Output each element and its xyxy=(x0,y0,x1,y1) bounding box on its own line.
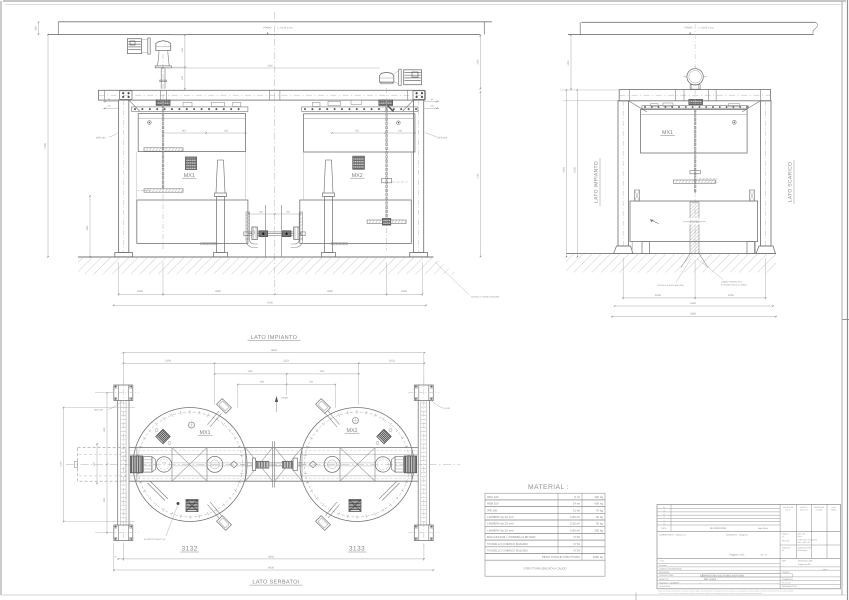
svg-text:1345: 1345 xyxy=(401,290,407,293)
svg-text:+4.100: +4.100 xyxy=(443,407,451,410)
svg-text:DOCUMENTO N°: DOCUMENTO N° xyxy=(782,585,797,588)
svg-text:0,20 m²: 0,20 m² xyxy=(570,522,580,526)
svg-text:TASSELLI N.8 M12 BULLONI: TASSELLI N.8 M12 BULLONI xyxy=(657,284,684,287)
svg-text:LAMIERA Sp.20 mm: LAMIERA Sp.20 mm xyxy=(487,528,514,532)
svg-text:HEB 160: HEB 160 xyxy=(438,137,448,140)
svg-text:2120: 2120 xyxy=(690,302,696,305)
svg-text:MX2: MX2 xyxy=(352,173,363,179)
svg-text:Fornitore: Fornitore xyxy=(659,564,667,567)
svg-text:3133: 3133 xyxy=(349,546,365,553)
svg-text:HEA 120: HEA 120 xyxy=(487,495,499,499)
svg-text:1080 kg: 1080 kg xyxy=(593,555,604,559)
svg-text:1050: 1050 xyxy=(567,60,570,66)
svg-text:LAMIERA Sp.15 mm: LAMIERA Sp.15 mm xyxy=(487,522,514,526)
svg-text:data firma: data firma xyxy=(758,527,769,530)
svg-text:1358: 1358 xyxy=(165,359,171,362)
svg-text:N° A.C.12: N° A.C.12 xyxy=(782,581,790,584)
svg-text:4432: 4432 xyxy=(268,555,274,558)
svg-text:70 kg: 70 kg xyxy=(596,508,603,512)
svg-text:0,80 m²: 0,80 m² xyxy=(570,528,580,532)
svg-text:30 kg: 30 kg xyxy=(596,522,603,526)
svg-text:ATTACCO TRASC. N.2: ATTACCO TRASC. N.2 xyxy=(144,538,166,541)
svg-text:2120: 2120 xyxy=(60,461,63,467)
svg-text:N°: N° xyxy=(782,535,784,538)
svg-text:600 kg: 600 kg xyxy=(594,502,603,506)
svg-text:AGENZIA N. - Disegn.M.: AGENZIA N. - Disegn.M. xyxy=(726,534,748,537)
svg-text:1520: 1520 xyxy=(103,497,106,503)
svg-text:N°18: N°18 xyxy=(574,535,581,539)
svg-text:0,80 m²: 0,80 m² xyxy=(570,515,580,519)
svg-text:MX1 - MX2 - PB: MX1 - MX2 - PB xyxy=(798,541,811,544)
svg-text:1050: 1050 xyxy=(477,59,480,65)
svg-text:DATA EMISS.: DATA EMISS. xyxy=(659,585,671,588)
svg-text:N°16: N°16 xyxy=(574,542,581,546)
svg-text:REV.: REV. xyxy=(662,527,667,530)
svg-text:-: - xyxy=(602,535,603,539)
svg-text:TAVOLA N. - NUMERO: TAVOLA N. - NUMERO xyxy=(659,581,679,584)
svg-text:2400: 2400 xyxy=(690,313,696,316)
svg-text:AL PONTE DILLO A CURCO: AL PONTE DILLO A CURCO xyxy=(721,283,747,286)
svg-text:LUOGO CANTIERE/SEDE: LUOGO CANTIERE/SEDE xyxy=(659,568,682,571)
svg-text:OGGETTO: OGGETTO xyxy=(659,578,669,581)
svg-text:7150: 7150 xyxy=(44,143,47,149)
svg-text:4760: 4760 xyxy=(267,301,273,304)
svg-text:4630: 4630 xyxy=(268,567,274,570)
svg-text:L.+3,50 s.l.m.: L.+3,50 s.l.m. xyxy=(699,26,715,29)
svg-text:PIANO: PIANO xyxy=(684,26,692,29)
svg-text:TRAMP: TRAMP xyxy=(281,397,289,400)
svg-text:2435: 2435 xyxy=(327,290,333,293)
svg-text:100 kg: 100 kg xyxy=(594,495,603,499)
svg-text:REVISIONE: REVISIONE xyxy=(659,571,670,574)
svg-text:LATO SCARICO: LATO SCARICO xyxy=(788,162,794,202)
svg-text:60 kg: 60 kg xyxy=(596,515,603,519)
svg-text:4432: 4432 xyxy=(271,349,277,352)
svg-text:TASSELLO CHIMICO M16x300: TASSELLO CHIMICO M16x300 xyxy=(471,295,500,298)
svg-text:AG 123: AG 123 xyxy=(782,540,790,543)
svg-text:3132: 3132 xyxy=(181,546,197,553)
svg-text:OFFICINA CARP.: OFFICINA CARP. xyxy=(798,560,813,563)
svg-text:COSTRUTTORE: COSTRUTTORE xyxy=(659,574,674,577)
svg-text:ISCE IL N°: ISCE IL N° xyxy=(800,509,808,512)
svg-text:TASSELLO CHIMICO M16x300: TASSELLO CHIMICO M16x300 xyxy=(487,542,528,546)
svg-text:2160: 2160 xyxy=(477,173,480,179)
svg-text:NATURA: NATURA xyxy=(816,509,824,512)
svg-text:MX1: MX1 xyxy=(662,130,673,136)
svg-text:LAMIERA Sp.10 mm: LAMIERA Sp.10 mm xyxy=(487,515,514,519)
svg-text:HEB 160: HEB 160 xyxy=(96,137,106,140)
svg-text:PIAN.: PIAN. xyxy=(798,535,803,538)
svg-text:11 mt: 11 mt xyxy=(573,508,580,512)
svg-text:Sc. 1:1: Sc. 1:1 xyxy=(761,554,769,557)
svg-text:IPE 160: IPE 160 xyxy=(487,508,498,512)
svg-text:1021: 1021 xyxy=(389,359,395,362)
svg-text:14 mt: 14 mt xyxy=(573,502,580,506)
svg-text:MX1: MX1 xyxy=(184,173,195,179)
svg-text:COMMESSA: COMMESSA xyxy=(782,578,794,581)
svg-text:HEB 160: HEB 160 xyxy=(487,502,499,506)
svg-text:1310: 1310 xyxy=(247,370,253,373)
svg-text:DESCRIZIONE: DESCRIZIONE xyxy=(710,527,727,530)
svg-text:LATO IMPIANTO: LATO IMPIANTO xyxy=(251,335,298,341)
svg-text:I - B.T.: I - B.T. xyxy=(659,560,665,563)
svg-text:1312: 1312 xyxy=(319,370,325,373)
svg-text:TASSELLO CHIMICO M12x300: TASSELLO CHIMICO M12x300 xyxy=(487,549,528,553)
svg-text:130 kg: 130 kg xyxy=(594,528,603,532)
svg-text:2120: 2120 xyxy=(573,167,576,173)
svg-text:2450: 2450 xyxy=(563,167,566,173)
svg-text:1520: 1520 xyxy=(103,427,106,433)
svg-text:1060: 1060 xyxy=(728,294,734,297)
svg-text:CANNE SPURGO PTB: CANNE SPURGO PTB xyxy=(721,281,742,284)
svg-text:L.+3,50 s.l.m.: L.+3,50 s.l.m. xyxy=(278,26,294,29)
svg-text:DAL N°: DAL N° xyxy=(785,509,791,512)
svg-text:1060: 1060 xyxy=(655,294,661,297)
svg-text:1: 1 xyxy=(699,581,700,584)
svg-text:MATERIAL :: MATERIAL : xyxy=(528,484,569,491)
svg-text:2435: 2435 xyxy=(215,290,221,293)
svg-text:HEB 160: HEB 160 xyxy=(94,409,104,412)
svg-text:PIANO: PIANO xyxy=(263,26,271,29)
svg-text:A3: A3 xyxy=(782,549,784,552)
svg-text:MX2: MX2 xyxy=(346,428,357,434)
svg-text:LATO SERBATOI: LATO SERBATOI xyxy=(252,579,299,585)
svg-text:2123: 2123 xyxy=(283,359,289,362)
svg-text:2235: 2235 xyxy=(267,65,273,68)
svg-text:COMMITTENTE - Riserva s.r.l.: COMMITTENTE - Riserva s.r.l. xyxy=(659,534,687,537)
svg-text:1345: 1345 xyxy=(137,290,143,293)
svg-text:PESO TOTALE STRUTTURA: PESO TOTALE STRUTTURA xyxy=(542,555,580,559)
svg-text:BULLONI M.B + RONDELLA 8P 8x8: BULLONI M.B + RONDELLA 8P 8x80 xyxy=(487,535,536,539)
svg-text:CODICE: CODICE xyxy=(782,571,790,574)
svg-text:1850: 1850 xyxy=(86,225,89,231)
svg-text:LATO IMPIANTO: LATO IMPIANTO xyxy=(594,161,600,203)
svg-text:5 mt: 5 mt xyxy=(574,495,580,499)
svg-text:N°24: N°24 xyxy=(574,549,581,553)
svg-text:MX1: MX1 xyxy=(199,430,210,436)
svg-text:REV.disegno: REV.disegno xyxy=(798,549,808,552)
svg-text:360: 360 xyxy=(35,26,38,31)
svg-text:Pagina 1 di 1: Pagina 1 di 1 xyxy=(729,554,745,557)
svg-text:MX1 & MX2: MX1 & MX2 xyxy=(704,578,717,581)
svg-text:P.agit.temp.PB: P.agit.temp.PB xyxy=(798,563,811,566)
svg-text:REP.: REP. xyxy=(782,560,787,563)
svg-text:STRUTTURA ZINCATA A CALDO: STRUTTURA ZINCATA A CALDO xyxy=(523,567,567,571)
svg-text:FIRMA: FIRMA xyxy=(831,509,837,512)
